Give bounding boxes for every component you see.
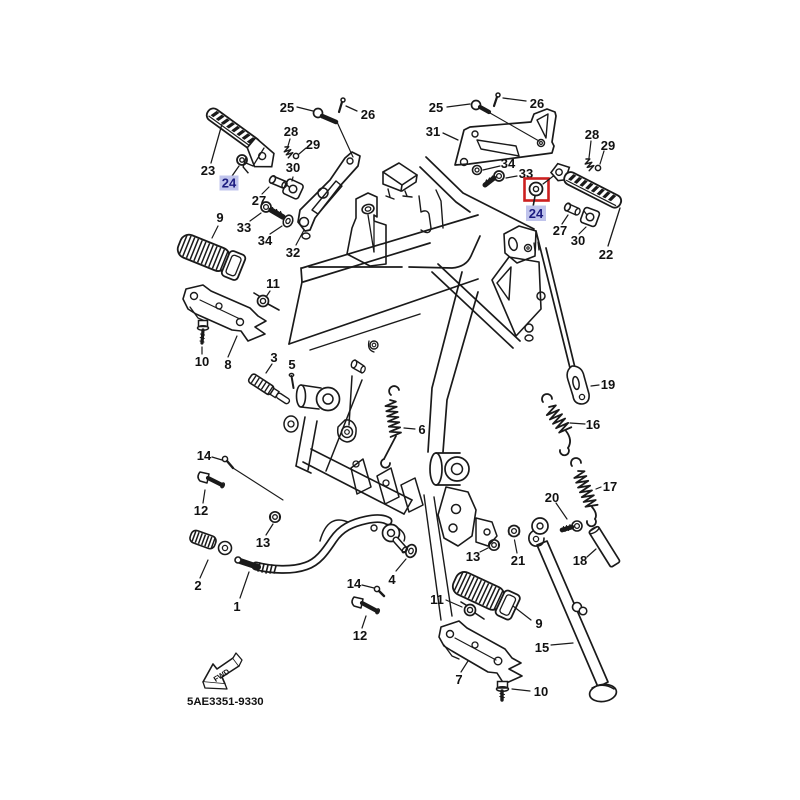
svg-text:30: 30 [571,233,585,248]
svg-text:24: 24 [529,206,544,221]
svg-text:26: 26 [361,107,375,122]
svg-text:2: 2 [194,578,201,593]
svg-text:10: 10 [195,354,209,369]
svg-text:15: 15 [535,640,549,655]
svg-text:24: 24 [222,176,237,191]
svg-text:11: 11 [430,592,444,607]
svg-text:9: 9 [535,616,542,631]
svg-text:29: 29 [306,137,320,152]
svg-text:25: 25 [280,100,294,115]
svg-text:28: 28 [585,127,599,142]
svg-text:32: 32 [286,245,300,260]
svg-text:16: 16 [586,417,600,432]
svg-text:6: 6 [418,422,425,437]
svg-text:17: 17 [603,479,617,494]
svg-text:34: 34 [258,233,273,248]
svg-text:14: 14 [197,448,212,463]
svg-text:14: 14 [347,576,362,591]
svg-text:1: 1 [233,599,240,614]
svg-text:11: 11 [266,276,280,291]
svg-text:5: 5 [288,357,295,372]
svg-text:21: 21 [511,553,525,568]
svg-text:10: 10 [534,684,548,699]
svg-text:20: 20 [545,490,559,505]
svg-text:18: 18 [573,553,587,568]
svg-text:5AE3351-9330: 5AE3351-9330 [187,696,264,708]
svg-text:27: 27 [553,223,567,238]
svg-text:25: 25 [429,100,443,115]
svg-text:30: 30 [286,160,300,175]
svg-text:3: 3 [270,350,277,365]
svg-text:23: 23 [201,163,215,178]
svg-text:22: 22 [599,247,613,262]
svg-text:7: 7 [455,672,462,687]
svg-text:4: 4 [388,572,396,587]
svg-text:13: 13 [256,535,270,550]
svg-text:13: 13 [466,549,480,564]
svg-text:28: 28 [284,124,298,139]
svg-text:12: 12 [194,503,208,518]
svg-text:26: 26 [530,96,544,111]
svg-text:34: 34 [501,156,516,171]
svg-text:12: 12 [353,628,367,643]
svg-text:33: 33 [237,220,251,235]
svg-text:19: 19 [601,377,615,392]
svg-text:29: 29 [601,138,615,153]
svg-text:8: 8 [224,357,231,372]
svg-text:31: 31 [426,124,440,139]
svg-text:9: 9 [216,210,223,225]
